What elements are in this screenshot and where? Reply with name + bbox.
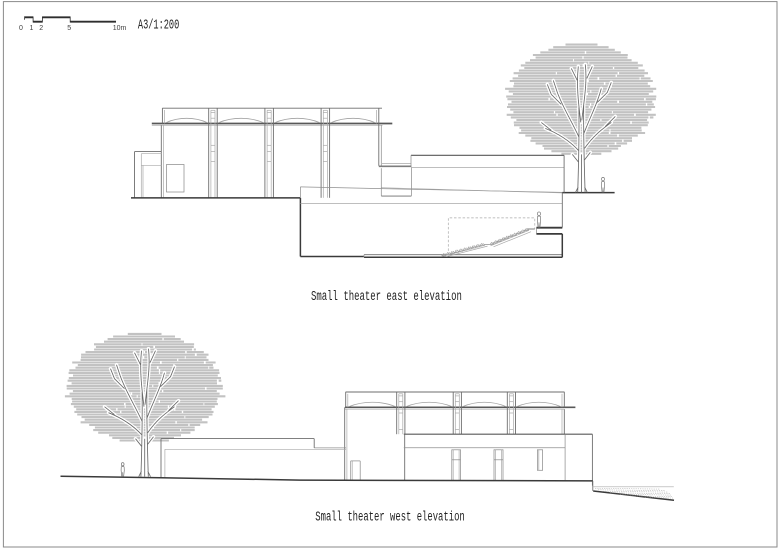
- svg-text:5: 5: [67, 25, 71, 32]
- svg-text:10m: 10m: [113, 25, 127, 32]
- svg-text:1: 1: [29, 25, 33, 32]
- svg-text:0: 0: [19, 25, 23, 32]
- svg-text:A3/1:200: A3/1:200: [138, 18, 179, 34]
- svg-text:Small theater east elevation: Small theater east elevation: [311, 288, 462, 305]
- svg-text:Small theater west elevation: Small theater west elevation: [315, 509, 464, 526]
- svg-text:2: 2: [39, 25, 43, 32]
